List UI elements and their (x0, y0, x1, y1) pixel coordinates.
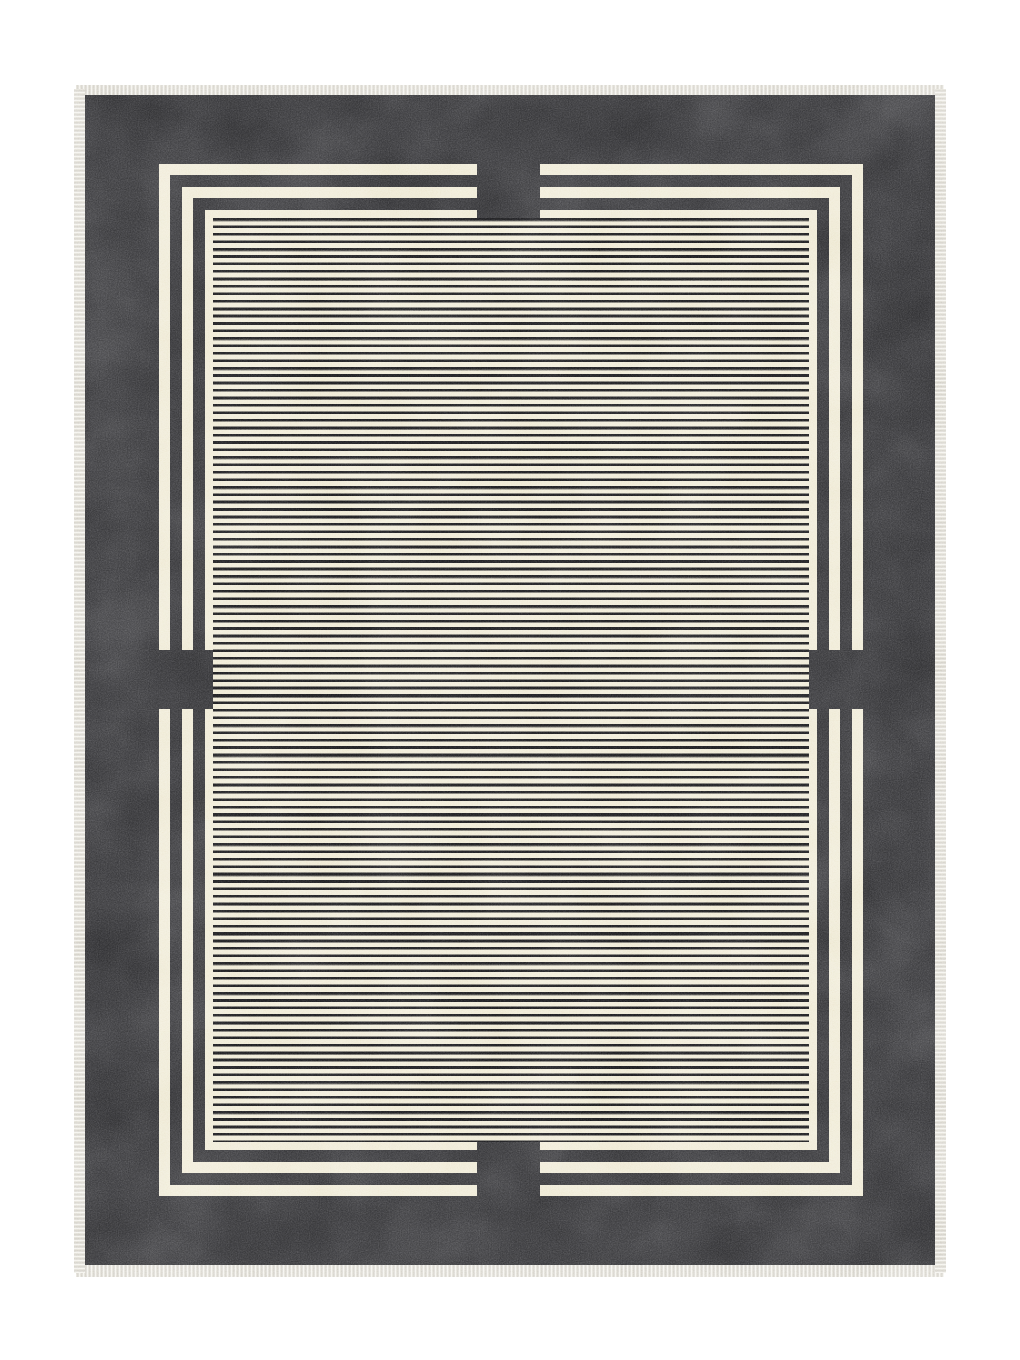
rug-fringe-bottom (76, 1265, 944, 1277)
rug-fringe-top (76, 85, 944, 95)
rug (74, 85, 946, 1277)
rug-stripe-panel (205, 210, 817, 1150)
rug-fringe-left (74, 89, 85, 1273)
rug-pinstripes (213, 218, 809, 1142)
rug-notch-top (477, 150, 540, 218)
rug-fringe-right (935, 89, 946, 1273)
rug-notch-left (143, 650, 213, 709)
rug-notch-bottom (477, 1142, 540, 1208)
product-photo-canvas (0, 0, 1020, 1360)
rug-notch-right (809, 650, 879, 709)
rug-border-field (85, 95, 935, 1265)
